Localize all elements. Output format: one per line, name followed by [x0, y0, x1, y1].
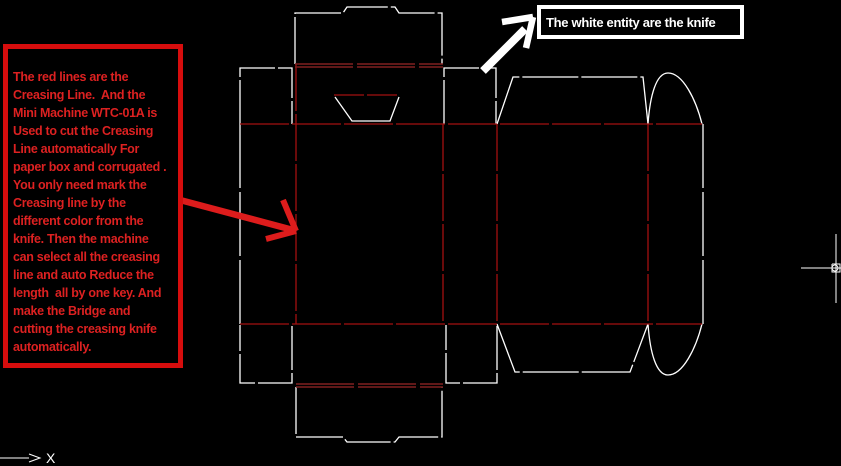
- cad-viewport: X The red lines are the Creasing Line. A…: [0, 0, 841, 466]
- ucs-x-arrowhead: [29, 454, 40, 462]
- top-back-dust-flap-cut: [497, 77, 648, 124]
- red-arrow-shaft: [180, 200, 293, 230]
- ucs-x-label: X: [46, 450, 56, 466]
- thumb-notch-cut: [335, 97, 399, 121]
- knife-label-text: The white entity are the knife: [541, 15, 715, 30]
- knife-label-box: The white entity are the knife: [537, 5, 744, 39]
- bottom-right-dust-flap-cut: [446, 325, 497, 383]
- white-arrow-shaft: [483, 29, 525, 71]
- glue-flap-top-curve: [648, 73, 702, 124]
- creasing-note-text: The red lines are the Creasing Line. And…: [8, 49, 178, 356]
- creasing-note-box: The red lines are the Creasing Line. And…: [3, 44, 183, 368]
- top-right-dust-flap-cut: [444, 68, 496, 124]
- top-tuck-flap-cut: [295, 7, 442, 64]
- white-arrow-head-down-barb: [526, 17, 533, 48]
- bottom-left-dust-flap-cut: [240, 325, 292, 383]
- red-arrow-head-lower-barb: [266, 231, 296, 239]
- bottom-back-dust-flap-cut: [497, 324, 648, 372]
- glue-flap-bottom-curve: [648, 324, 702, 375]
- bottom-tuck-flap-cut: [296, 387, 442, 442]
- white-arrow-head-left-barb: [502, 17, 533, 22]
- top-left-dust-flap-cut: [240, 68, 292, 124]
